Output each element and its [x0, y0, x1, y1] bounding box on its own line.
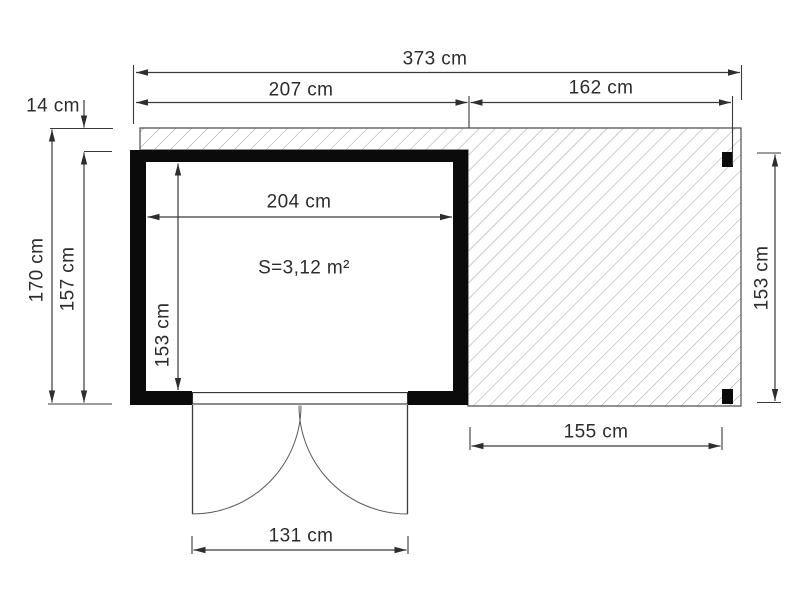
post-bottom-right [722, 389, 733, 404]
dim-canopy-width-label: 162 cm [569, 79, 634, 98]
dim-overhang-label: 14 cm [26, 97, 80, 116]
dim-door-width-label: 131 cm [269, 527, 334, 546]
dim-total-width-label: 373 cm [403, 50, 468, 69]
dim-total-depth-label: 170 cm [28, 238, 47, 303]
dim-canopy-depth-label: 153 cm [753, 246, 772, 311]
floor-plan-canvas: 373 cm 207 cm 162 cm 14 cm 170 cm 157 cm… [0, 0, 800, 600]
area-label: S=3,12 m² [258, 259, 350, 278]
dim-canopy-clear-label: 155 cm [564, 423, 629, 442]
terrace-hatch-region [140, 128, 741, 406]
dim-cabin-depth-label: 157 cm [59, 247, 78, 312]
floor-plan-drawing [0, 0, 800, 600]
door-swing-arc-left [193, 406, 302, 515]
dim-cabin-width-label: 207 cm [269, 81, 334, 100]
dim-inner-depth-label: 153 cm [154, 303, 173, 368]
post-top-right [722, 152, 733, 167]
door-threshold [193, 393, 408, 404]
door-swing-arc-right [299, 406, 408, 515]
dim-inner-width-label: 204 cm [267, 193, 332, 212]
